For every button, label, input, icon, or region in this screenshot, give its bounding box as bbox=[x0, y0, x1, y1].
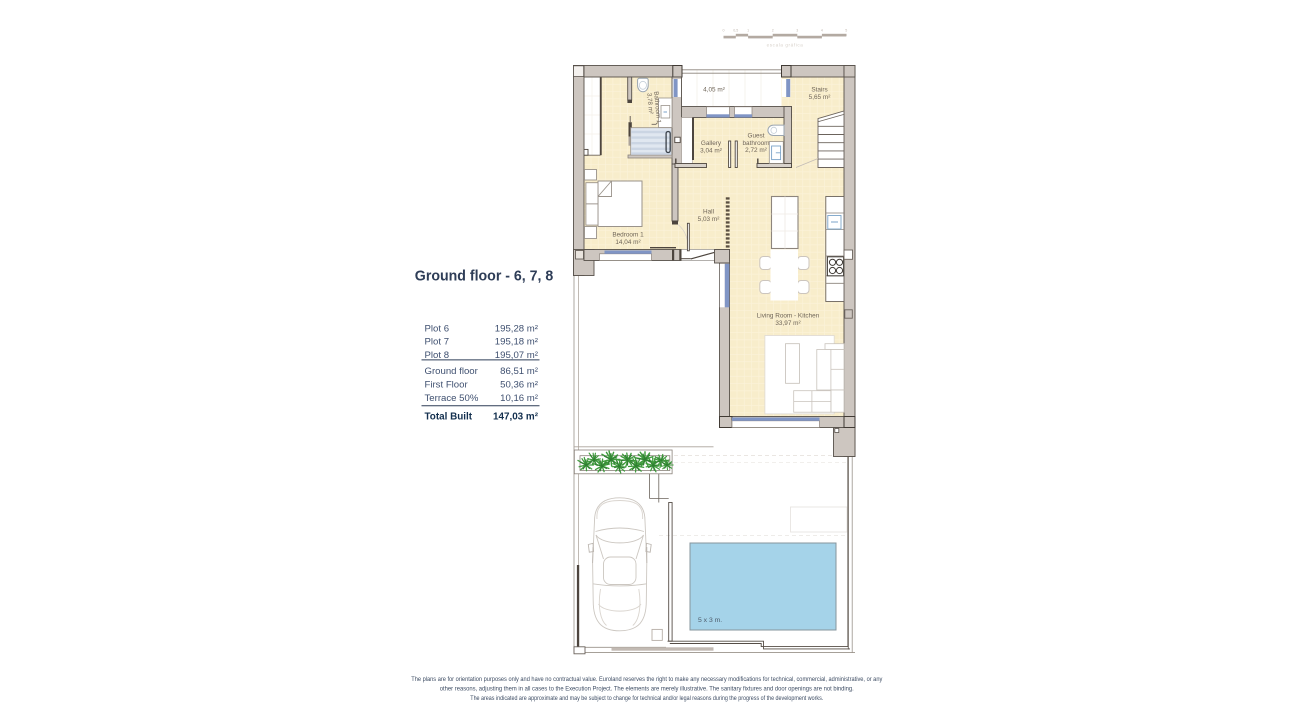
svg-text:Living Room - Kitchen: Living Room - Kitchen bbox=[757, 313, 820, 320]
svg-text:195,18 m²: 195,18 m² bbox=[495, 337, 539, 348]
svg-text:bathroom: bathroom bbox=[743, 140, 770, 147]
svg-text:86,51 m²: 86,51 m² bbox=[500, 366, 539, 377]
svg-text:The areas indicated are approx: The areas indicated are approximate and … bbox=[470, 695, 823, 702]
svg-text:escala gráfica: escala gráfica bbox=[767, 43, 804, 48]
svg-text:other reasons, adjusting them: other reasons, adjusting them in all cas… bbox=[440, 685, 854, 692]
svg-text:14,04 m²: 14,04 m² bbox=[615, 239, 640, 246]
svg-text:First Floor: First Floor bbox=[425, 380, 469, 391]
svg-text:2: 2 bbox=[772, 29, 774, 33]
svg-text:4: 4 bbox=[821, 29, 823, 33]
svg-text:195,28 m²: 195,28 m² bbox=[495, 323, 539, 334]
svg-text:5 x 3 m.: 5 x 3 m. bbox=[698, 617, 722, 624]
svg-text:Gallery: Gallery bbox=[701, 140, 722, 147]
svg-text:5,03 m²: 5,03 m² bbox=[698, 216, 720, 223]
svg-text:4,05 m²: 4,05 m² bbox=[703, 87, 725, 94]
svg-text:147,03 m²: 147,03 m² bbox=[493, 411, 539, 422]
svg-text:Plot 7: Plot 7 bbox=[425, 337, 450, 348]
svg-text:5,65 m²: 5,65 m² bbox=[809, 94, 831, 101]
svg-text:Terrace 50%: Terrace 50% bbox=[425, 393, 479, 404]
svg-text:5: 5 bbox=[845, 29, 847, 33]
svg-text:2,72 m²: 2,72 m² bbox=[745, 147, 767, 154]
svg-text:3: 3 bbox=[796, 29, 798, 33]
svg-text:Ground floor - 6, 7, 8: Ground floor - 6, 7, 8 bbox=[415, 268, 554, 284]
svg-text:1: 1 bbox=[747, 29, 749, 33]
svg-text:Stairs: Stairs bbox=[811, 87, 827, 94]
svg-text:3,04 m²: 3,04 m² bbox=[700, 147, 722, 154]
svg-text:Hall: Hall bbox=[703, 209, 714, 216]
svg-text:Total Built: Total Built bbox=[425, 411, 473, 422]
svg-text:10,16 m²: 10,16 m² bbox=[500, 393, 539, 404]
svg-text:Guest: Guest bbox=[747, 133, 764, 140]
svg-text:0: 0 bbox=[723, 29, 725, 33]
svg-text:Plot 6: Plot 6 bbox=[425, 323, 450, 334]
svg-text:The plans are for orientation: The plans are for orientation purposes o… bbox=[411, 676, 883, 683]
svg-text:0,5: 0,5 bbox=[733, 29, 738, 33]
svg-text:50,36 m²: 50,36 m² bbox=[500, 380, 539, 391]
svg-text:Bedroom 1: Bedroom 1 bbox=[612, 232, 644, 239]
svg-text:Ground floor: Ground floor bbox=[425, 366, 479, 377]
svg-text:33,97 m²: 33,97 m² bbox=[775, 320, 800, 327]
